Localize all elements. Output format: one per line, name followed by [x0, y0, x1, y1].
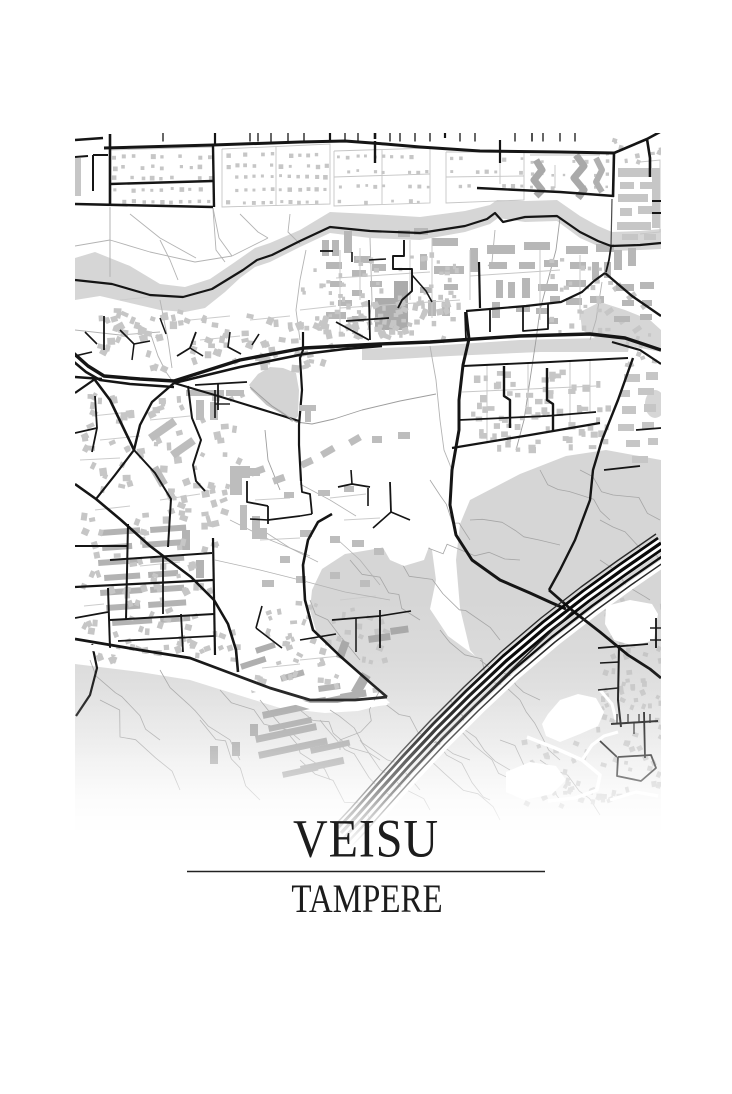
svg-text:VEISU: VEISU [293, 809, 439, 869]
svg-text:TAMPERE: TAMPERE [291, 876, 442, 921]
